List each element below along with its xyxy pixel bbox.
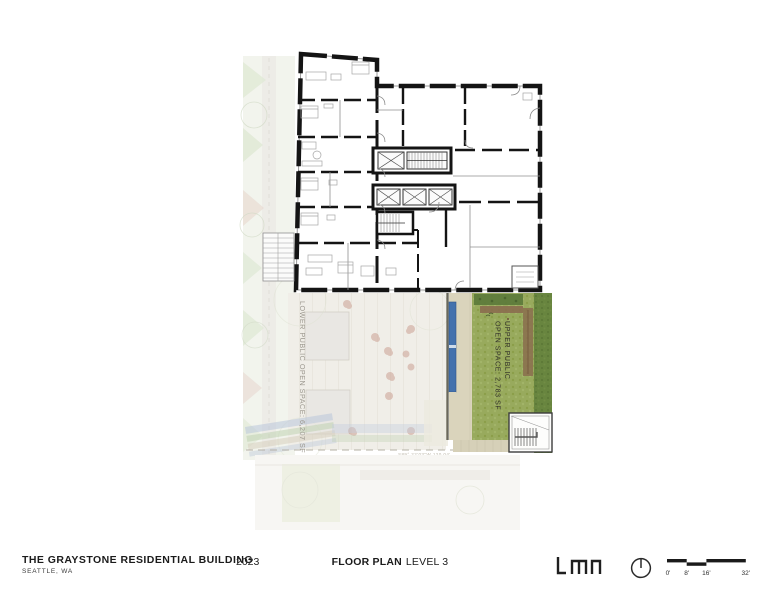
lmn-logo bbox=[555, 552, 607, 578]
upper-public-open-space: UPPER PUBLIC OPEN SPACE: 2,783 SF bbox=[448, 293, 553, 453]
building-plan bbox=[263, 54, 540, 290]
hedge bbox=[474, 294, 523, 305]
north-arrow-icon bbox=[628, 554, 656, 582]
drawing-sheet: LOWER PUBLIC OPEN SPACE: 6,207 SF S89° 2… bbox=[0, 0, 780, 603]
planter bbox=[480, 306, 523, 313]
roof-stair-detail bbox=[509, 413, 552, 452]
scale-bar: 0' 8' 16' 32' bbox=[661, 552, 761, 580]
exterior-stair bbox=[263, 233, 294, 281]
drawing-title-bold: FLOOR PLAN bbox=[332, 556, 402, 568]
lower-open-space-label: LOWER PUBLIC OPEN SPACE: 6,207 SF bbox=[298, 301, 307, 453]
floor-plan-drawing: LOWER PUBLIC OPEN SPACE: 6,207 SF S89° 2… bbox=[0, 0, 780, 545]
drawing-title-level: LEVEL 3 bbox=[406, 556, 448, 568]
street-strip bbox=[255, 455, 520, 530]
walkway bbox=[456, 293, 472, 440]
stair-core bbox=[377, 212, 413, 234]
elevator-core bbox=[373, 148, 451, 173]
stair-core bbox=[407, 152, 447, 169]
scale-label: 16' bbox=[702, 570, 710, 577]
project-location: SEATTLE, WA bbox=[22, 568, 253, 575]
scale-label: 0' bbox=[666, 570, 671, 577]
elevator-core bbox=[373, 185, 455, 209]
scale-label: 32' bbox=[742, 570, 750, 577]
scale-label: 8' bbox=[684, 570, 689, 577]
